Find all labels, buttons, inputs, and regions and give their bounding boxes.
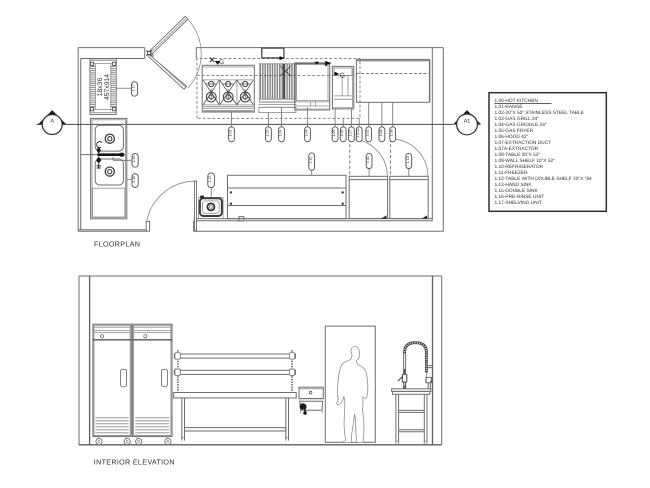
svg-text:1.09: 1.09: [390, 130, 394, 137]
svg-text:G: G: [340, 73, 345, 80]
svg-text:1.07A-EXTRACTOR: 1.07A-EXTRACTOR: [495, 146, 539, 152]
svg-text:1.17-SHELVING UNIT: 1.17-SHELVING UNIT: [495, 200, 542, 206]
svg-text:1.07-EXTRACTION DUCT: 1.07-EXTRACTION DUCT: [495, 140, 552, 146]
svg-text:457x914: 457x914: [104, 74, 111, 100]
svg-text:1.00-HOT KITCHEN: 1.00-HOT KITCHEN: [495, 98, 539, 104]
svg-text:1.02-30"X 50" STAINLESS STEEL: 1.02-30"X 50" STAINLESS STEEL TABLE: [495, 110, 584, 116]
svg-text:1.16: 1.16: [132, 156, 136, 163]
svg-text:A: A: [50, 118, 54, 124]
svg-text:1.07: 1.07: [348, 129, 352, 136]
svg-text:1.08: 1.08: [379, 129, 383, 136]
svg-text:1.15: 1.15: [132, 176, 136, 183]
svg-text:1.05: 1.05: [332, 130, 336, 137]
svg-text:1.13: 1.13: [208, 176, 212, 183]
svg-text:1.12-TABLE WITH DOUBLE SHELF 3: 1.12-TABLE WITH DOUBLE SHELF 30"X "84: [495, 176, 592, 182]
svg-text:FLOORPLAN: FLOORPLAN: [94, 239, 140, 248]
svg-text:1.04: 1.04: [279, 130, 283, 137]
svg-text:1.03-GAS GRILL 24": 1.03-GAS GRILL 24": [495, 116, 540, 122]
svg-text:1.16-PRE-RINSE UNIT: 1.16-PRE-RINSE UNIT: [495, 194, 545, 200]
svg-text:1.06-HOOD 42": 1.06-HOOD 42": [495, 134, 529, 140]
svg-text:1.09-WALL SHELF 10"X 52": 1.09-WALL SHELF 10"X 52": [495, 158, 556, 164]
svg-text:1.05-GAS FRYER: 1.05-GAS FRYER: [495, 128, 534, 134]
svg-text:G: G: [219, 59, 224, 66]
svg-text:1.11: 1.11: [366, 156, 370, 163]
svg-text:A1: A1: [464, 118, 471, 124]
svg-text:1.11-FREEZER: 1.11-FREEZER: [495, 170, 529, 176]
svg-text:1.10-REFRIGERATOR: 1.10-REFRIGERATOR: [495, 164, 544, 170]
svg-text:1.06: 1.06: [340, 130, 344, 137]
svg-text:1.07A: 1.07A: [356, 128, 360, 138]
svg-text:1.04-GAS GRIDDLE 24": 1.04-GAS GRIDDLE 24": [495, 122, 547, 128]
svg-text:INTERIOR ELEVATION: INTERIOR ELEVATION: [94, 457, 175, 466]
svg-text:1.10: 1.10: [406, 156, 410, 163]
svg-text:1.12: 1.12: [309, 157, 313, 164]
svg-text:1.13-HAND SINK: 1.13-HAND SINK: [495, 182, 533, 188]
svg-text:1.17: 1.17: [132, 84, 136, 91]
svg-text:1.15-DOUBLE SINK: 1.15-DOUBLE SINK: [495, 188, 539, 194]
svg-text:1.08-TABLE 30"X 52": 1.08-TABLE 30"X 52": [495, 152, 541, 158]
svg-text:1.02: 1.02: [366, 130, 370, 137]
svg-text:1.01-RANGE: 1.01-RANGE: [495, 104, 523, 110]
svg-text:1.03: 1.03: [265, 129, 269, 136]
svg-text:1.04: 1.04: [305, 130, 309, 137]
svg-text:1.01: 1.01: [229, 130, 233, 137]
